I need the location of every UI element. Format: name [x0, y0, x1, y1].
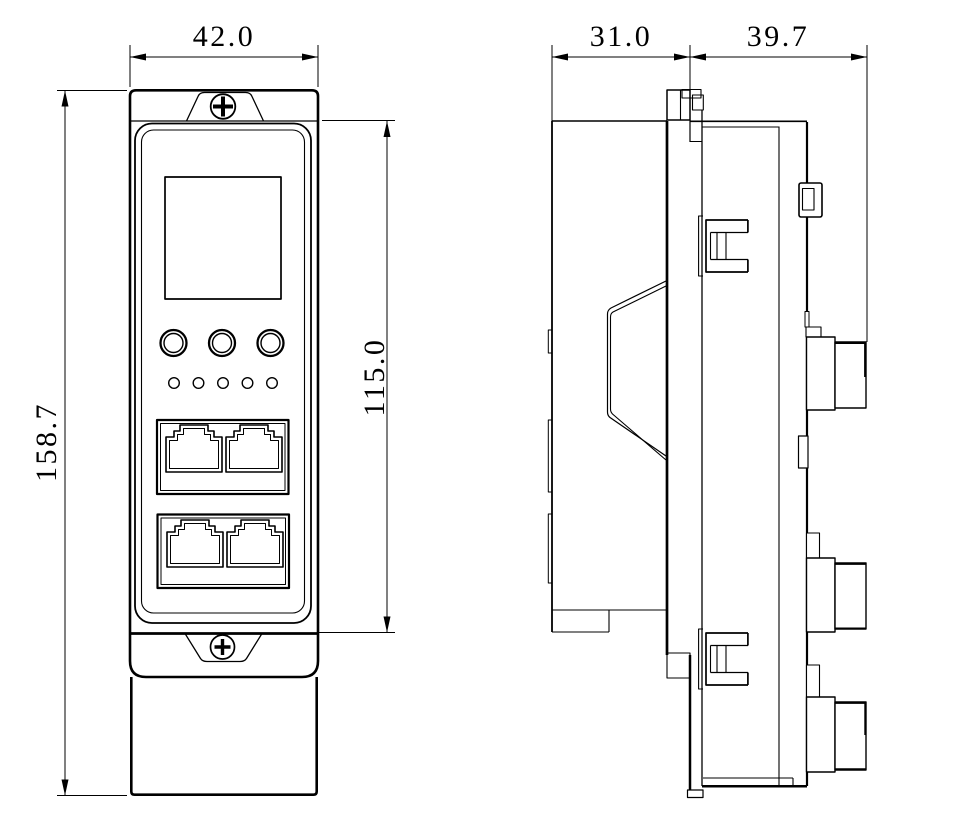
- side-connector-3-outer: [835, 702, 866, 770]
- dim-label-front-panel-height: 115.0: [358, 338, 391, 417]
- connector-2-step: [807, 533, 820, 558]
- dim-label-side-mount-depth: 31.0: [590, 20, 653, 53]
- dim-label-side-body-depth: 39.7: [747, 20, 810, 53]
- side-connector-1-outer: [835, 342, 866, 408]
- side-connector-3: [807, 697, 836, 772]
- side-tab-middle: [799, 436, 809, 468]
- side-seam: [805, 312, 809, 328]
- drawing-canvas: 42.0 31.0 39.7: [0, 0, 954, 832]
- dim-label-front-overall-height: 158.7: [30, 402, 63, 482]
- connector-3-step: [807, 665, 820, 697]
- side-connector-2: [807, 558, 836, 632]
- dim-label-front-width: 42.0: [193, 20, 256, 53]
- technical-drawing: 42.0 31.0 39.7: [0, 0, 954, 832]
- din-clip-foot: [688, 790, 704, 798]
- side-connector-2-outer: [835, 563, 866, 629]
- side-connector-1: [807, 337, 836, 410]
- connector-1-step: [806, 327, 821, 337]
